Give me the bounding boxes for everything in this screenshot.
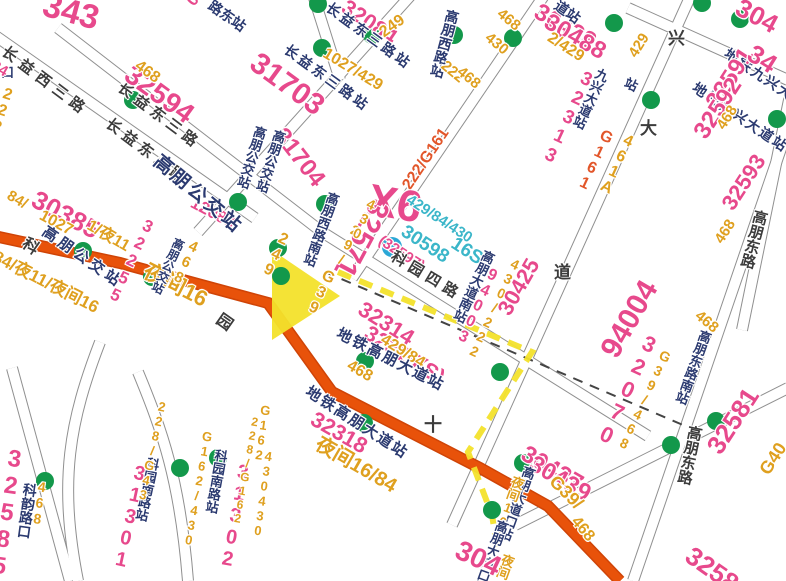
map-label: 84/ xyxy=(5,188,31,211)
map-label: 高朋公交站 xyxy=(150,152,246,237)
map-label: 高朋东路 xyxy=(676,424,703,486)
map-label: 32582 xyxy=(681,542,755,581)
map-label: 道 xyxy=(554,264,571,281)
map-label: 249 xyxy=(257,228,293,281)
map-label: 468 xyxy=(712,217,738,246)
map-label: 高朋东路 xyxy=(738,208,768,270)
map-labels-layer: 343086路东站长益西三路长益东三路长益东三路32594468口2228432… xyxy=(0,0,786,581)
map-label: 大 xyxy=(640,120,657,137)
map-label: 长益西三路 xyxy=(0,44,92,119)
map-label: 站 xyxy=(623,76,640,93)
map-label: 十 xyxy=(424,416,442,434)
map-label: 304 xyxy=(732,0,783,37)
map-label: 343 xyxy=(39,0,103,36)
transit-map[interactable]: 343086路东站长益西三路长益东三路长益东三路32594468口2228432… xyxy=(0,0,786,581)
map-label: G40 xyxy=(756,439,786,477)
map-label: G39 xyxy=(302,266,338,319)
map-label: 高朋东路南站 xyxy=(673,328,712,406)
map-label: 468 xyxy=(344,358,375,385)
map-label: 430 xyxy=(482,30,511,58)
map-label: 468 xyxy=(494,6,523,34)
map-label: 1/夜11 xyxy=(84,218,132,255)
map-label: 32593 xyxy=(718,151,770,214)
map-label: 兴 xyxy=(668,30,685,47)
map-label: 468 xyxy=(568,514,597,545)
map-label: 222 xyxy=(0,84,17,137)
map-label: 路东站 xyxy=(206,0,248,34)
map-label: 429 xyxy=(626,31,652,60)
map-label: 32581 xyxy=(702,383,763,458)
map-label: 科 xyxy=(19,236,41,258)
map-label: 园 xyxy=(213,312,235,334)
